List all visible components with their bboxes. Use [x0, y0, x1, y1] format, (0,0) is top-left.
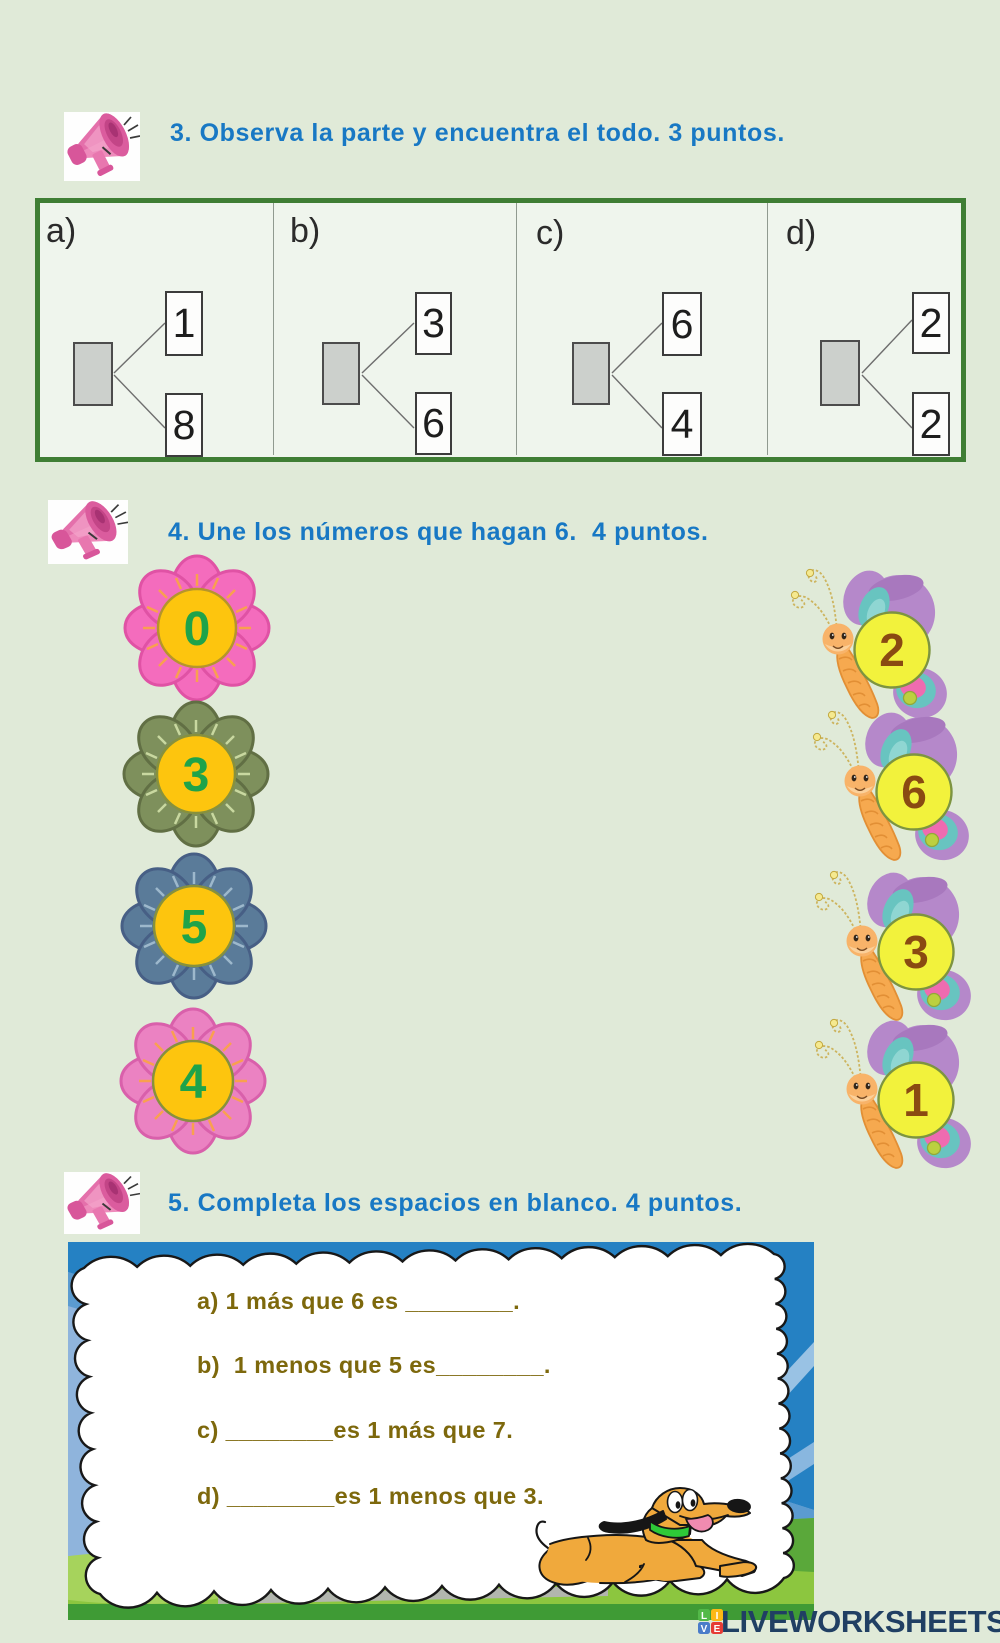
svg-text:3: 3	[903, 926, 929, 978]
svg-text:6: 6	[901, 766, 927, 818]
svg-text:4: 4	[180, 1056, 207, 1109]
svg-text:2: 2	[879, 624, 905, 676]
svg-text:5: 5	[181, 901, 208, 954]
svg-text:V: V	[701, 1624, 708, 1635]
svg-text:1: 1	[903, 1074, 929, 1126]
svg-text:I: I	[716, 1611, 719, 1622]
svg-text:0: 0	[184, 603, 211, 656]
svg-text:L: L	[701, 1611, 707, 1622]
svg-text:E: E	[714, 1624, 721, 1635]
svg-text:3: 3	[183, 749, 210, 802]
